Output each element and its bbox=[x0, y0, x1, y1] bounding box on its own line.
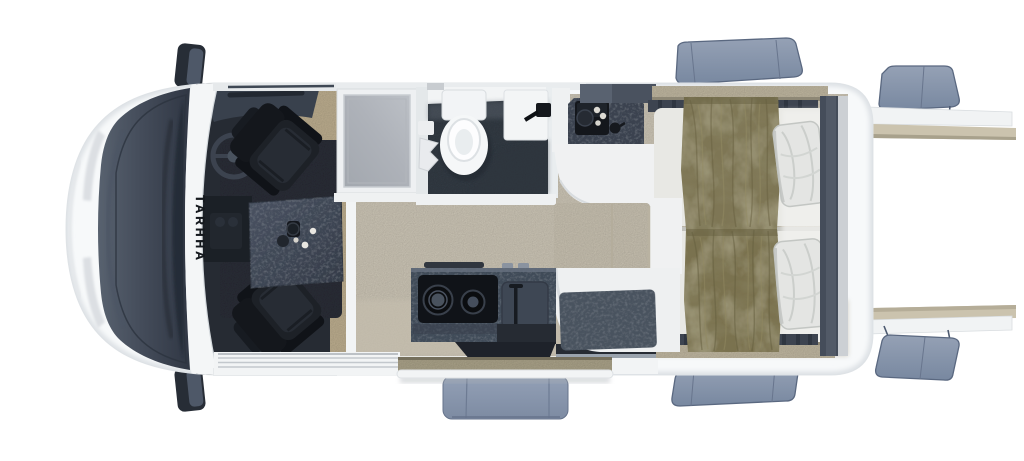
svg-text:TARHHA: TARHHA bbox=[193, 195, 207, 263]
